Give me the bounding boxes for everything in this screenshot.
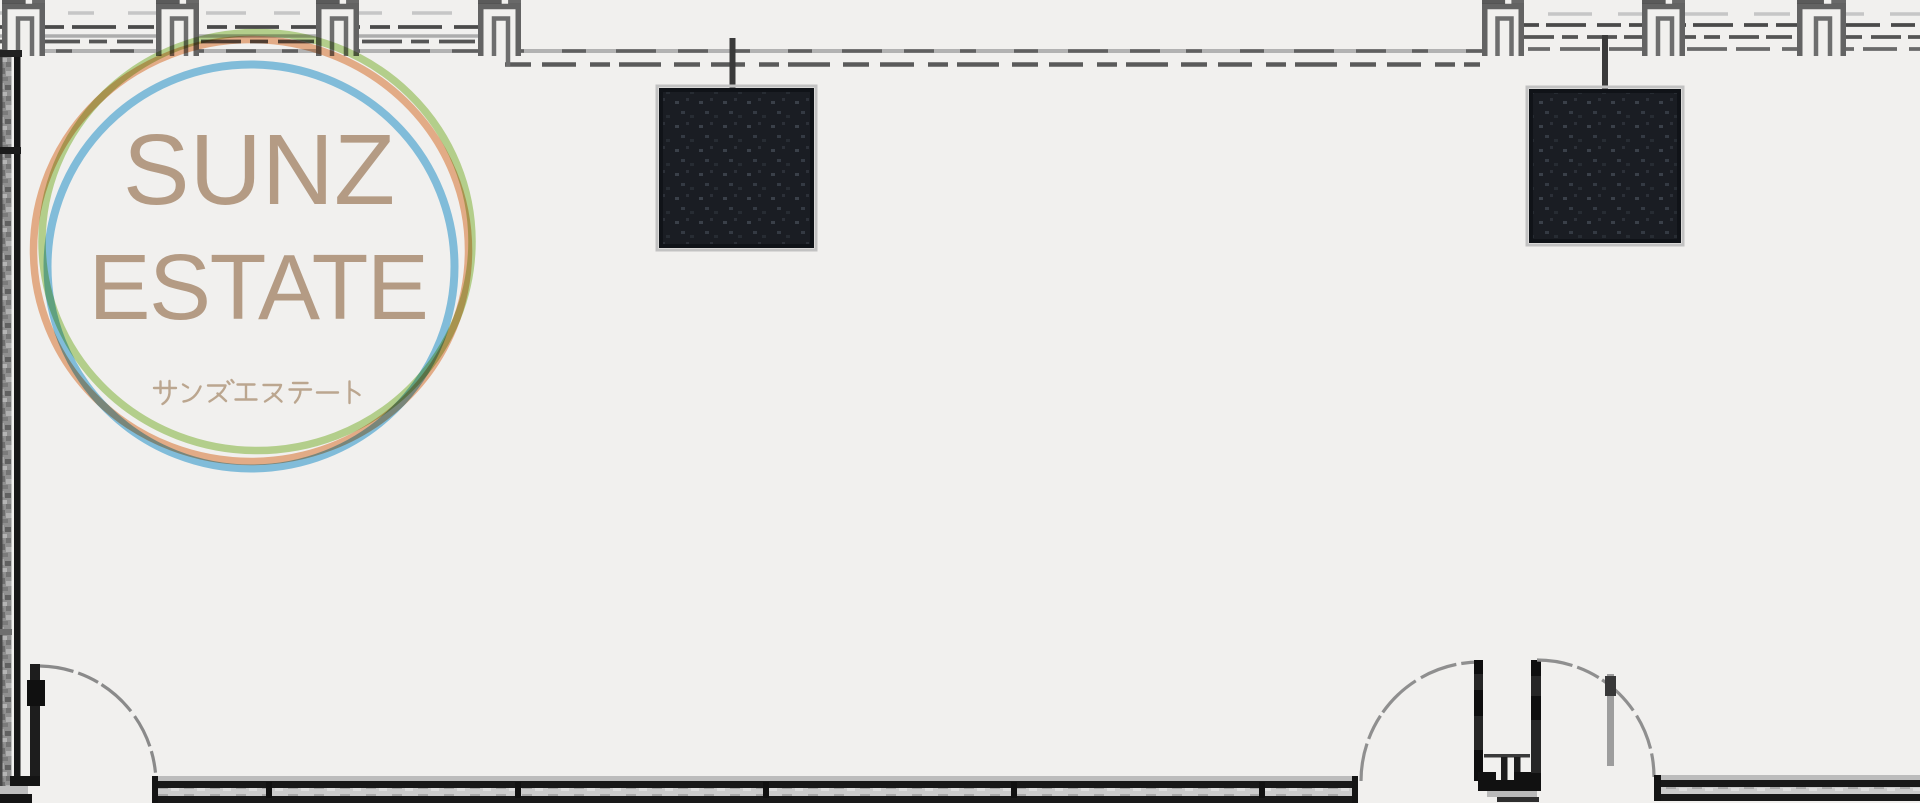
svg-text:ESTATE: ESTATE — [89, 235, 428, 339]
svg-text:SUNZ: SUNZ — [123, 114, 395, 226]
